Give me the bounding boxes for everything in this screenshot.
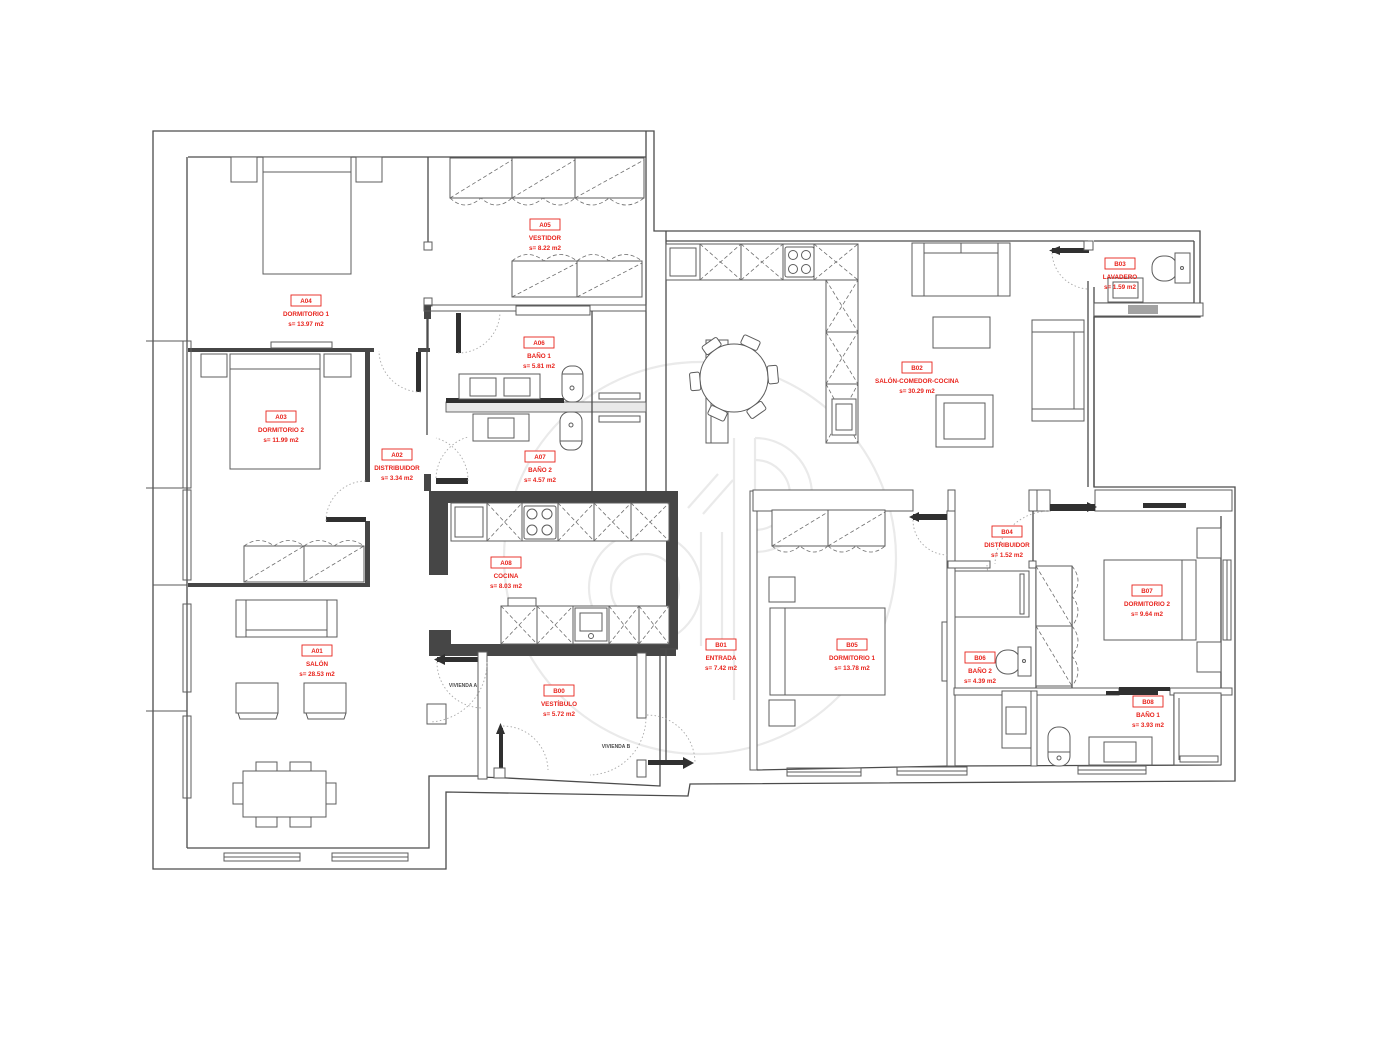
svg-text:s= 8.22 m2: s= 8.22 m2 (529, 245, 562, 252)
svg-text:A07: A07 (534, 454, 546, 461)
svg-text:A06: A06 (533, 340, 545, 347)
svg-text:DORMITORIO 1: DORMITORIO 1 (829, 655, 876, 662)
svg-text:COCINA: COCINA (494, 573, 519, 580)
svg-text:VESTIDOR: VESTIDOR (529, 235, 562, 242)
svg-text:B04: B04 (1001, 529, 1013, 536)
svg-text:A08: A08 (500, 560, 512, 567)
svg-text:B01: B01 (715, 642, 727, 649)
svg-text:B00: B00 (553, 688, 565, 695)
svg-text:A04: A04 (300, 298, 312, 305)
svg-text:VIVIENDA A: VIVIENDA A (449, 683, 478, 689)
svg-text:s= 13.78 m2: s= 13.78 m2 (834, 665, 870, 672)
svg-text:VESTÍBULO: VESTÍBULO (541, 699, 577, 708)
svg-text:A03: A03 (275, 414, 287, 421)
svg-text:s= 1.52 m2: s= 1.52 m2 (991, 552, 1024, 559)
svg-text:A01: A01 (311, 648, 323, 655)
svg-text:A02: A02 (391, 452, 403, 459)
svg-text:s= 30.29 m2: s= 30.29 m2 (899, 388, 935, 395)
svg-text:DORMITORIO 2: DORMITORIO 2 (258, 427, 305, 434)
svg-text:ENTRADA: ENTRADA (706, 655, 737, 662)
svg-text:s= 9.64 m2: s= 9.64 m2 (1131, 611, 1164, 618)
svg-text:SALÓN-COMEDOR-COCINA: SALÓN-COMEDOR-COCINA (875, 376, 959, 385)
svg-text:s= 7.42 m2: s= 7.42 m2 (705, 665, 738, 672)
svg-text:BAÑO 1: BAÑO 1 (527, 351, 551, 360)
svg-text:VIVIENDA B: VIVIENDA B (602, 744, 631, 750)
svg-text:s= 5.72 m2: s= 5.72 m2 (543, 711, 576, 718)
svg-text:B02: B02 (911, 365, 923, 372)
svg-text:B03: B03 (1114, 261, 1126, 268)
svg-text:s= 4.57 m2: s= 4.57 m2 (524, 477, 557, 484)
svg-text:s= 28.53 m2: s= 28.53 m2 (299, 671, 335, 678)
svg-text:DISTRIBUIDOR: DISTRIBUIDOR (374, 465, 420, 472)
svg-text:s= 1.59 m2: s= 1.59 m2 (1104, 284, 1137, 291)
svg-text:BAÑO 2: BAÑO 2 (968, 666, 992, 675)
svg-text:s= 4.39 m2: s= 4.39 m2 (964, 678, 997, 685)
svg-text:B07: B07 (1141, 588, 1153, 595)
svg-text:B05: B05 (846, 642, 858, 649)
svg-text:B06: B06 (974, 655, 986, 662)
svg-text:s= 5.81 m2: s= 5.81 m2 (523, 363, 556, 370)
svg-text:BAÑO 2: BAÑO 2 (528, 465, 552, 474)
svg-text:BAÑO 1: BAÑO 1 (1136, 710, 1160, 719)
svg-text:B08: B08 (1142, 699, 1154, 706)
svg-text:s= 8.03 m2: s= 8.03 m2 (490, 583, 523, 590)
svg-text:s= 13.97 m2: s= 13.97 m2 (288, 321, 324, 328)
svg-text:DORMITORIO 2: DORMITORIO 2 (1124, 601, 1171, 608)
svg-text:s= 3.34 m2: s= 3.34 m2 (381, 475, 414, 482)
svg-text:DISTRIBUIDOR: DISTRIBUIDOR (984, 542, 1030, 549)
svg-text:s= 3.93 m2: s= 3.93 m2 (1132, 722, 1165, 729)
svg-text:LAVADERO: LAVADERO (1103, 274, 1138, 281)
svg-text:SALÓN: SALÓN (306, 659, 328, 668)
svg-text:s= 11.99 m2: s= 11.99 m2 (263, 437, 299, 444)
svg-text:A05: A05 (539, 222, 551, 229)
svg-text:DORMITORIO 1: DORMITORIO 1 (283, 311, 330, 318)
